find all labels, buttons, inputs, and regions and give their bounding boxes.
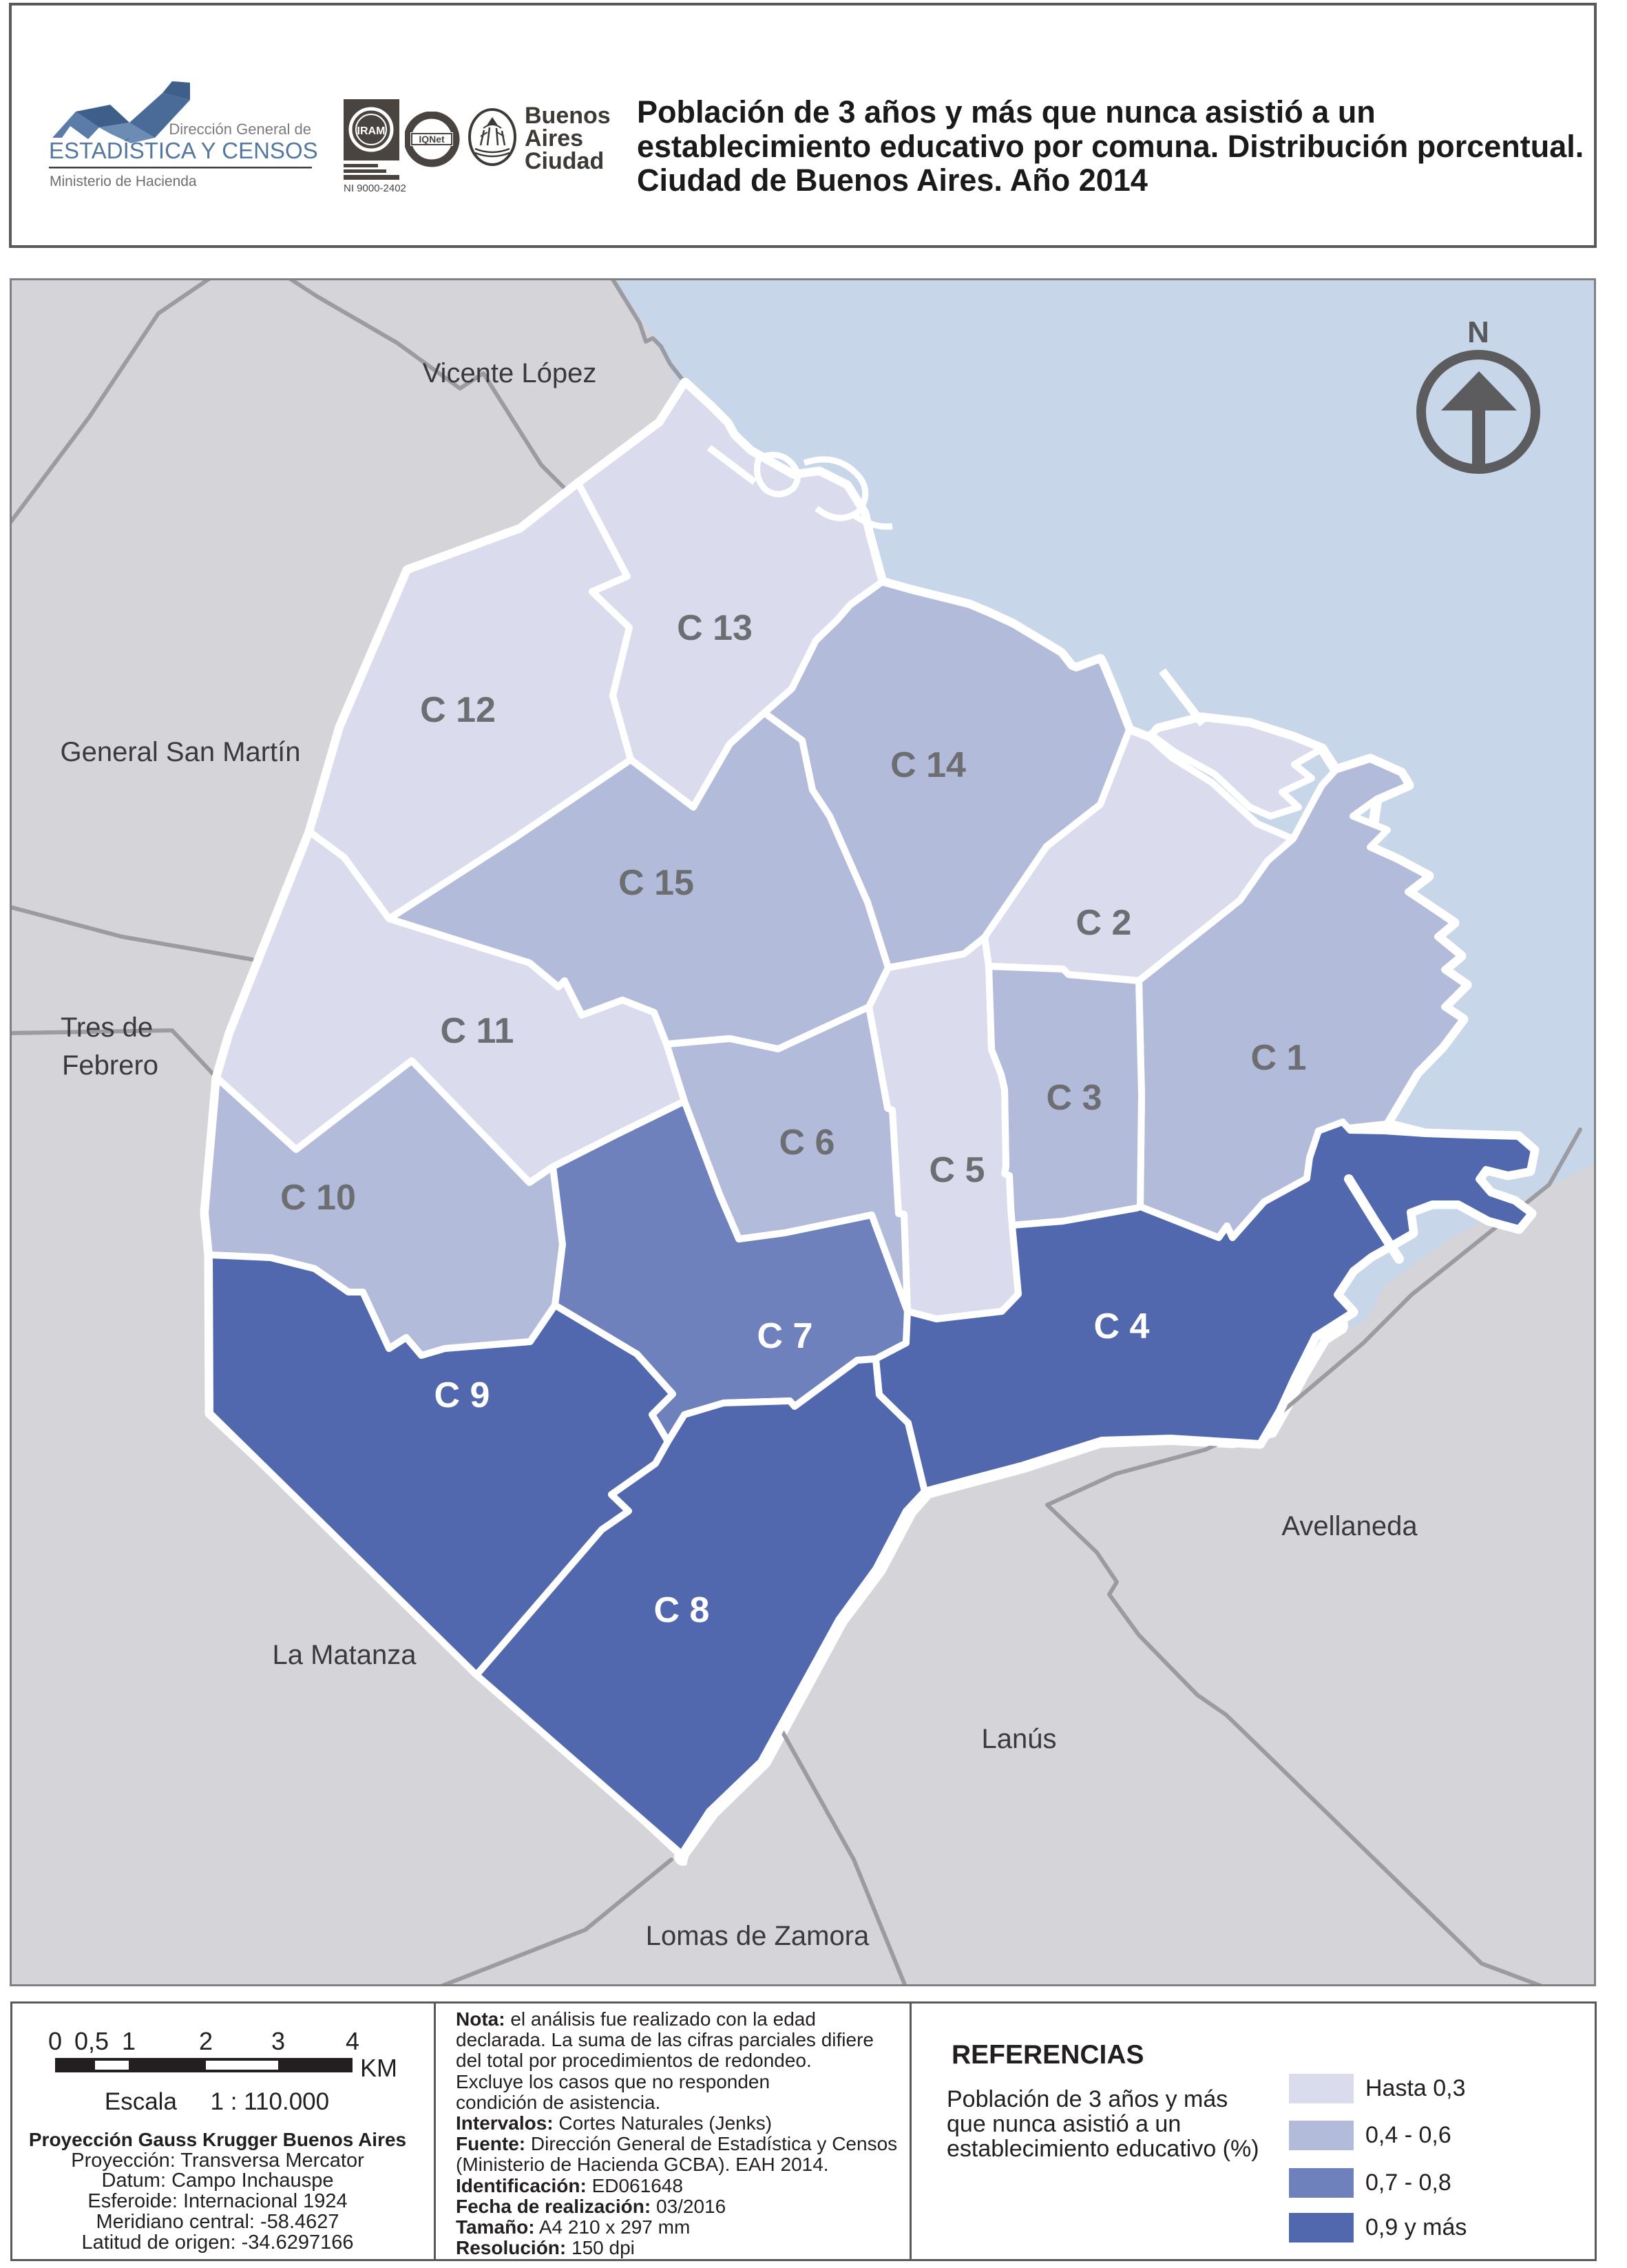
svg-text:3: 3 — [271, 2027, 285, 2055]
svg-text:1: 1 — [122, 2027, 136, 2055]
svg-text:0,5: 0,5 — [74, 2027, 109, 2055]
svg-text:C 5: C 5 — [930, 1150, 985, 1190]
svg-text:C 8: C 8 — [654, 1590, 710, 1630]
svg-text:2: 2 — [199, 2027, 213, 2055]
svg-text:C 15: C 15 — [618, 863, 694, 903]
svg-text:C 13: C 13 — [677, 608, 753, 648]
svg-text:C 9: C 9 — [434, 1375, 490, 1415]
svg-text:0: 0 — [48, 2027, 62, 2055]
svg-text:Ministerio de Hacienda: Ministerio de Hacienda — [50, 174, 197, 189]
svg-text:IQNet: IQNet — [419, 134, 445, 145]
svg-text:KM: KM — [360, 2054, 397, 2082]
svg-text:General San Martín: General San Martín — [60, 737, 300, 767]
svg-text:C 6: C 6 — [779, 1123, 835, 1163]
svg-text:NI 9000-2402: NI 9000-2402 — [344, 183, 406, 194]
svg-text:Febrero: Febrero — [62, 1050, 158, 1081]
svg-text:C 10: C 10 — [280, 1178, 356, 1218]
svg-text:Tres de: Tres de — [61, 1012, 153, 1043]
svg-text:C 12: C 12 — [420, 690, 496, 730]
svg-text:C 11: C 11 — [441, 1011, 514, 1051]
svg-text:C 1: C 1 — [1251, 1038, 1307, 1078]
svg-text:C 2: C 2 — [1076, 903, 1132, 943]
svg-text:C 7: C 7 — [757, 1316, 813, 1356]
svg-text:Vicente López: Vicente López — [423, 358, 597, 388]
svg-text:ESTADÍSTICA Y CENSOS: ESTADÍSTICA Y CENSOS — [49, 138, 318, 163]
svg-text:La Matanza: La Matanza — [272, 1640, 417, 1670]
svg-text:C 4: C 4 — [1094, 1307, 1150, 1346]
svg-text:N: N — [1467, 315, 1489, 349]
svg-text:C 3: C 3 — [1047, 1078, 1102, 1118]
svg-text:IRAM: IRAM — [357, 125, 386, 137]
svg-text:Avellaneda: Avellaneda — [1281, 1511, 1418, 1541]
svg-text:Lanús: Lanús — [982, 1724, 1057, 1754]
svg-text:Lomas de Zamora: Lomas de Zamora — [646, 1921, 870, 1951]
svg-text:4: 4 — [346, 2027, 359, 2055]
svg-text:Dirección General de: Dirección General de — [169, 121, 311, 138]
svg-text:C 14: C 14 — [890, 745, 966, 785]
